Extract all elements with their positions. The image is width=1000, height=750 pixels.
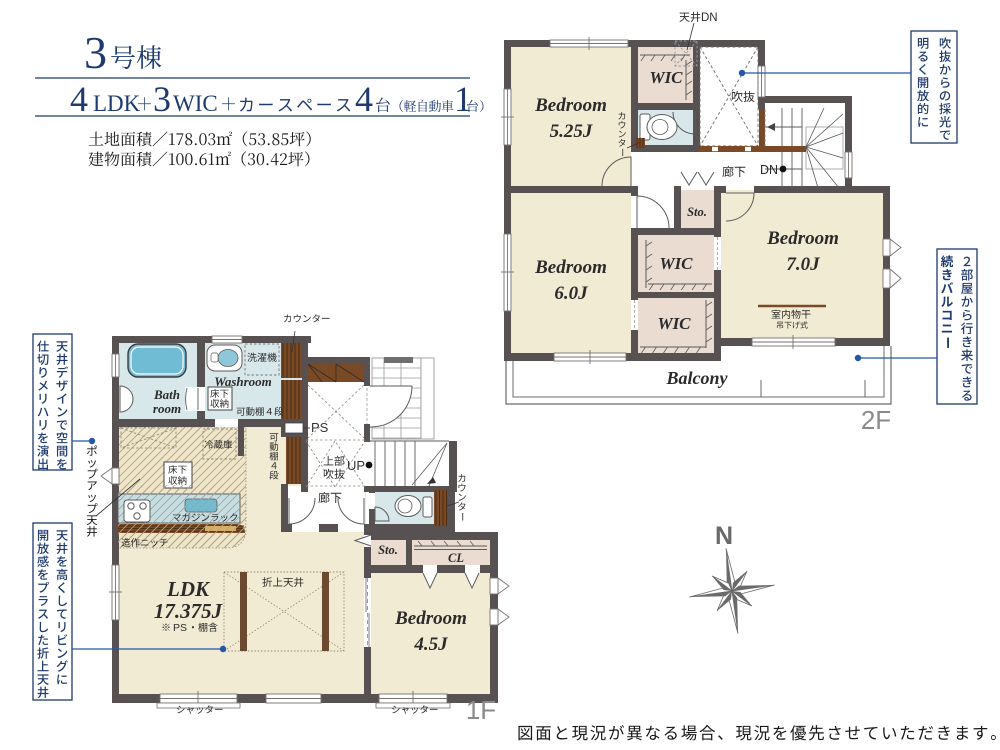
svg-text:Bath: Bath <box>153 387 180 402</box>
svg-text:Bedroom: Bedroom <box>394 608 467 629</box>
svg-text:Bedroom: Bedroom <box>766 228 839 249</box>
svg-text:4.5J: 4.5J <box>413 634 448 655</box>
svg-text:LDK: LDK <box>93 91 141 116</box>
svg-text:Sto.: Sto. <box>687 205 707 219</box>
svg-text:Sto.: Sto. <box>378 543 398 557</box>
svg-text:2F: 2F <box>861 405 891 435</box>
svg-text:7.0J: 7.0J <box>786 254 820 275</box>
svg-text:UP: UP <box>347 458 365 473</box>
svg-text:PS: PS <box>311 420 329 435</box>
svg-text:CL: CL <box>448 551 464 565</box>
svg-text:PS: PS <box>173 622 187 634</box>
svg-text:6.0J: 6.0J <box>554 283 588 304</box>
svg-text:WIC: WIC <box>173 91 218 116</box>
svg-text:WIC: WIC <box>649 68 683 87</box>
svg-text:17.375J: 17.375J <box>154 599 224 623</box>
svg-text:4: 4 <box>355 79 373 119</box>
svg-text:Bedroom: Bedroom <box>534 257 607 278</box>
svg-text:DN: DN <box>701 12 718 24</box>
svg-text:1: 1 <box>454 79 472 119</box>
svg-text:N: N <box>715 522 733 550</box>
svg-text:room: room <box>153 401 181 416</box>
svg-text:WIC: WIC <box>659 254 693 273</box>
svg-text:3: 3 <box>84 27 107 78</box>
svg-text:WIC: WIC <box>657 314 691 333</box>
svg-text:1F: 1F <box>466 695 496 725</box>
svg-text:4: 4 <box>70 79 88 119</box>
svg-text:5.25J: 5.25J <box>550 121 593 142</box>
svg-text:Bedroom: Bedroom <box>534 95 607 116</box>
svg-text:Balcony: Balcony <box>666 368 729 388</box>
svg-text:DN: DN <box>760 163 778 177</box>
svg-text:LDK: LDK <box>166 577 211 601</box>
svg-text:3: 3 <box>153 79 171 119</box>
